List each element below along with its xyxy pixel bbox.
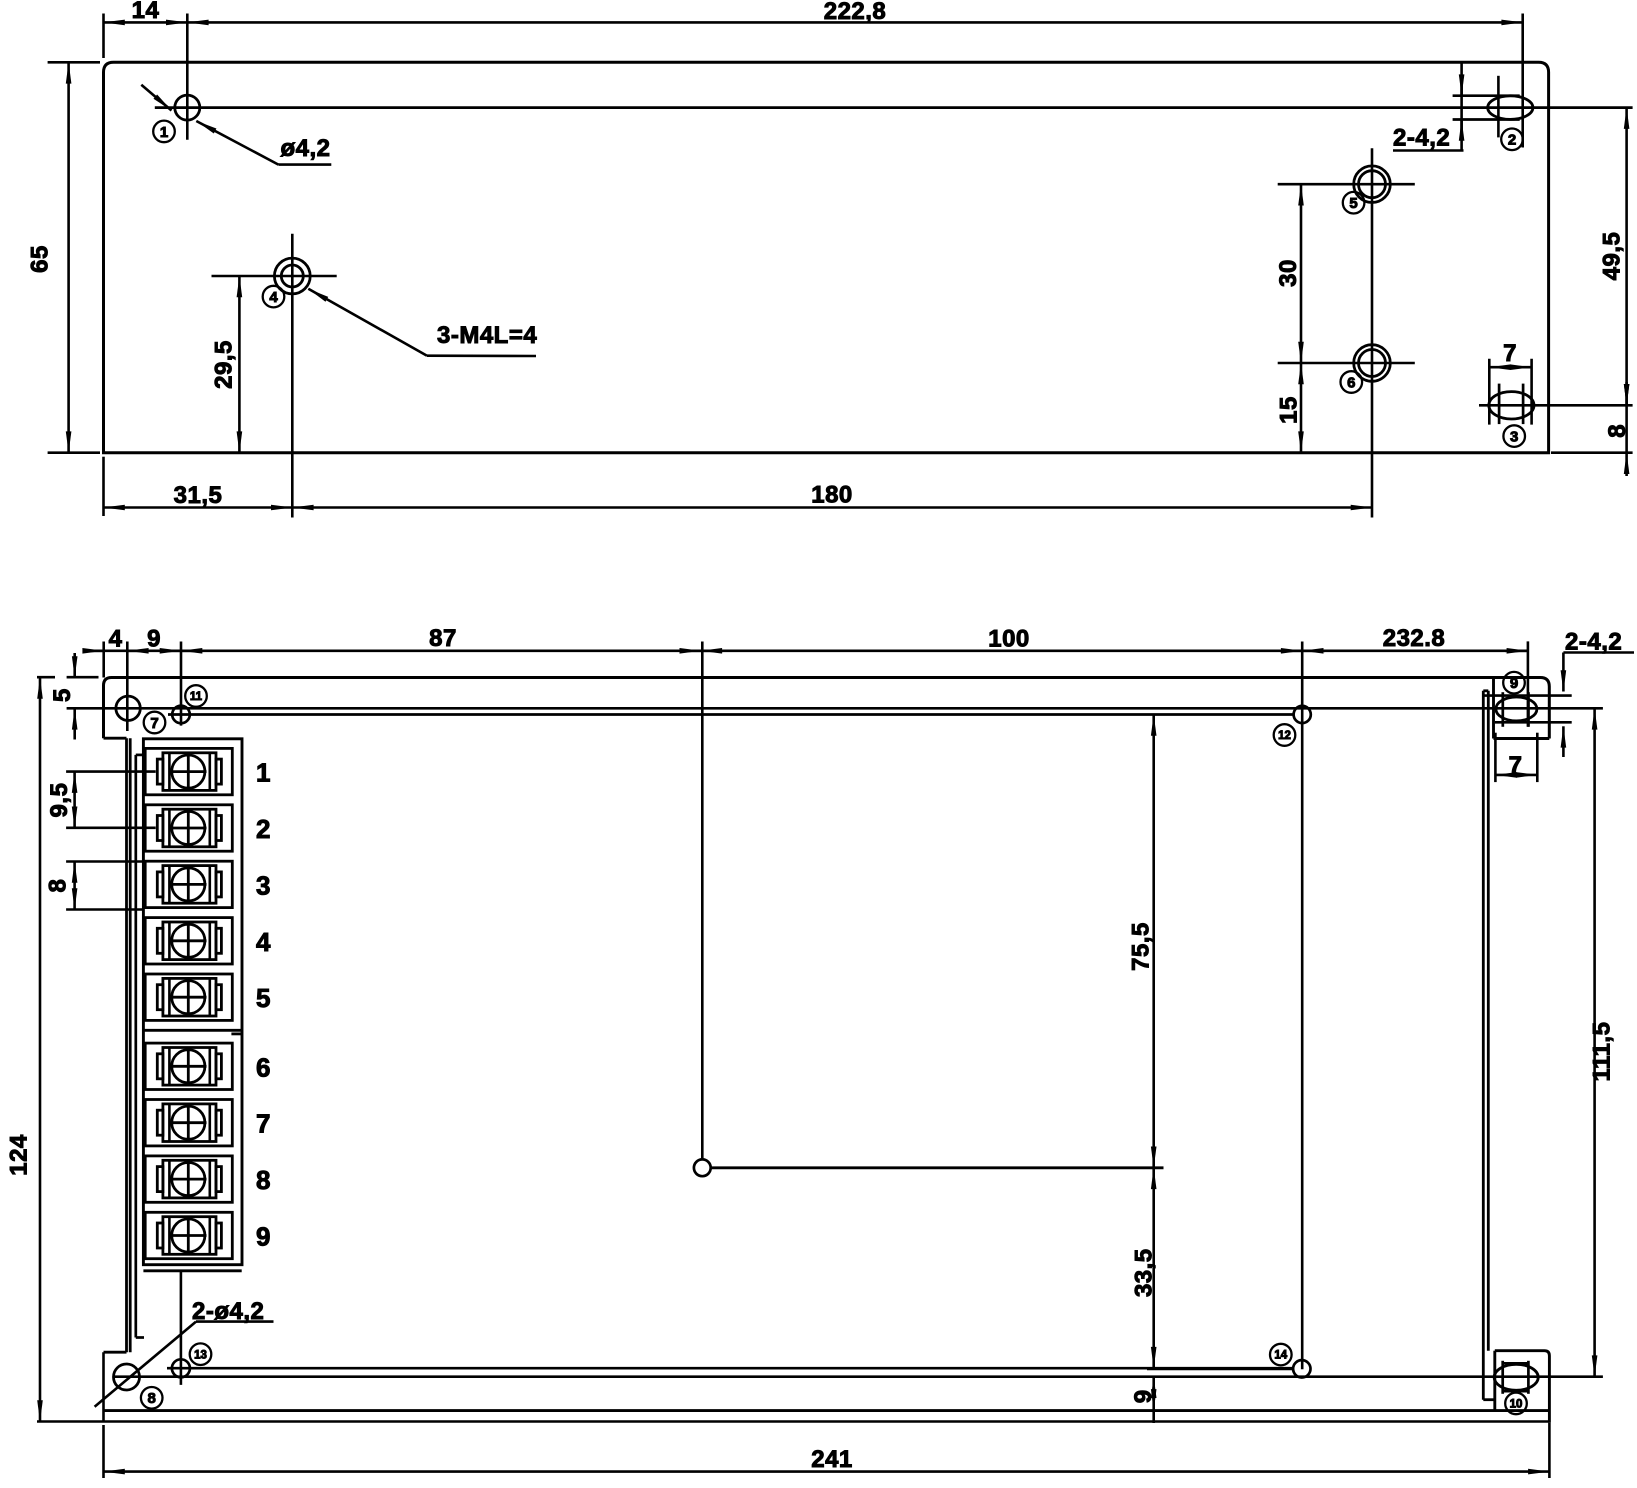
svg-text:4: 4: [256, 927, 271, 957]
svg-text:65: 65: [27, 245, 54, 273]
svg-text:241: 241: [811, 1446, 853, 1473]
svg-text:1: 1: [256, 758, 271, 788]
svg-text:33,5: 33,5: [1131, 1248, 1158, 1297]
svg-text:4: 4: [269, 289, 278, 306]
svg-text:13: 13: [194, 1349, 207, 1361]
svg-text:2: 2: [1508, 132, 1516, 149]
svg-text:8: 8: [1604, 424, 1631, 438]
svg-text:8: 8: [256, 1165, 271, 1195]
svg-text:8: 8: [148, 1390, 156, 1407]
svg-text:5: 5: [1349, 195, 1357, 212]
svg-text:5: 5: [256, 983, 271, 1013]
svg-text:7: 7: [1509, 752, 1523, 779]
svg-text:9: 9: [1510, 675, 1518, 692]
svg-text:3: 3: [256, 870, 271, 900]
svg-text:4: 4: [109, 626, 123, 653]
svg-text:7: 7: [1503, 340, 1517, 367]
svg-text:31,5: 31,5: [174, 482, 223, 509]
svg-text:87: 87: [429, 625, 457, 652]
svg-text:30: 30: [1275, 259, 1302, 287]
svg-text:7: 7: [256, 1109, 271, 1139]
svg-text:14: 14: [132, 0, 160, 24]
svg-text:29,5: 29,5: [211, 340, 238, 389]
svg-text:111,5: 111,5: [1589, 1022, 1616, 1082]
svg-text:2-ø4,2: 2-ø4,2: [192, 1298, 264, 1325]
svg-text:232.8: 232.8: [1383, 625, 1446, 652]
svg-text:49,5: 49,5: [1599, 232, 1626, 281]
svg-text:6: 6: [256, 1052, 271, 1082]
svg-text:9: 9: [147, 626, 161, 653]
svg-text:180: 180: [811, 482, 853, 509]
svg-text:124: 124: [6, 1134, 33, 1176]
svg-text:12: 12: [1278, 730, 1291, 742]
svg-text:10: 10: [1510, 1399, 1523, 1411]
svg-text:15: 15: [1276, 396, 1303, 424]
svg-text:100: 100: [988, 626, 1030, 653]
svg-text:ø4,2: ø4,2: [281, 135, 331, 162]
svg-text:9: 9: [1130, 1389, 1157, 1403]
svg-text:1: 1: [160, 124, 168, 141]
svg-text:9,5: 9,5: [46, 783, 73, 818]
svg-text:5: 5: [49, 688, 76, 702]
svg-text:222,8: 222,8: [824, 0, 887, 25]
svg-text:2: 2: [256, 814, 271, 844]
svg-text:8: 8: [45, 879, 72, 893]
svg-text:11: 11: [190, 691, 203, 703]
svg-text:75,5: 75,5: [1128, 922, 1155, 971]
svg-text:6: 6: [1347, 374, 1355, 391]
svg-text:14: 14: [1274, 1350, 1287, 1362]
svg-text:2-4,2: 2-4,2: [1393, 125, 1450, 152]
svg-text:3: 3: [1510, 429, 1518, 446]
svg-text:9: 9: [256, 1222, 271, 1252]
svg-text:3-M4L=4: 3-M4L=4: [437, 322, 537, 349]
svg-text:7: 7: [150, 715, 158, 732]
